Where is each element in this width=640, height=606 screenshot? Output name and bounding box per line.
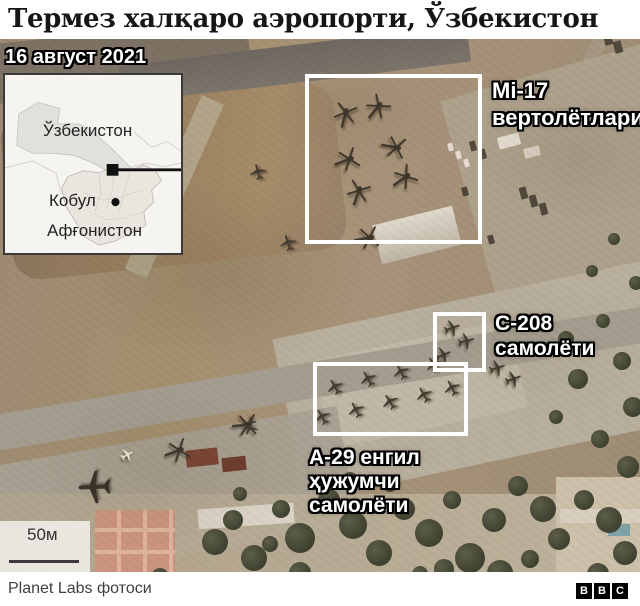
building-roof [221,456,246,472]
tree [415,519,443,547]
tree [366,540,392,566]
scale-label: 50м [27,525,58,545]
bbc-logo-block-1: B [576,583,592,599]
termez-marker [107,164,119,176]
tree [233,487,247,501]
tree [521,550,539,568]
tree [613,541,637,565]
tree [272,500,290,518]
inset-label-uzbekistan: Ўзбекистон [43,121,132,141]
satellite-image: 16 август 2021 Mi-17 вертолётлари C-208 … [0,39,640,572]
tree [548,528,570,550]
tree [508,476,528,496]
tree [482,508,506,532]
tree [262,536,278,552]
tree [586,265,598,277]
tree [574,490,594,510]
tree [608,233,620,245]
courtyard [95,510,175,572]
transport-airplane-silhouette [76,468,113,505]
kabul-dot [111,198,119,206]
a29-annotation-box [313,362,468,436]
footer-bar: Planet Labs фотоси B B C [0,572,640,606]
inset-label-kabul: Кобул [49,191,96,211]
c208-label-line1: C-208 [495,311,594,336]
page-title: Термез халқаро аэропорти, Ўзбекистон [0,0,640,34]
inset-map: Ўзбекистон Кобул Афғонистон [3,73,183,255]
mi17-label: Mi-17 вертолётлари [492,77,640,131]
mi17-label-line1: Mi-17 [492,77,640,104]
tree [591,430,609,448]
mi17-label-line2: вертолётлари [492,104,640,131]
c208-label-line2: самолёти [495,336,594,361]
c208-label: C-208 самолёти [495,311,594,361]
tree [443,491,461,509]
a29-label: A-29 енгил ҳужумчи самолёти [309,446,420,518]
tree [530,496,556,522]
tree [568,369,588,389]
date-label: 16 август 2021 [5,46,146,69]
tree [623,397,640,417]
tree [549,410,563,424]
mi17-annotation-box [305,74,482,244]
title-bar: Термез халқаро аэропорти, Ўзбекистон [0,0,640,39]
inset-label-afghanistan: Афғонистон [47,221,142,241]
bbc-logo-block-3: C [612,583,628,599]
tree [613,352,631,370]
tree [455,543,485,572]
tree [434,559,454,572]
tree [223,510,243,530]
a29-label-line1: A-29 енгил [309,446,420,470]
image-credit: Planet Labs фотоси [8,580,152,598]
vehicle [613,40,624,54]
bbc-logo-block-2: B [594,583,610,599]
news-graphic: Термез халқаро аэропорти, Ўзбекистон 16 … [0,0,640,606]
a29-label-line3: самолёти [309,494,420,518]
scale-bar: 50м [0,521,90,572]
tree [202,529,228,555]
scale-line [9,560,79,563]
tree [617,456,639,478]
tree [285,523,315,553]
tree [596,314,610,328]
tree [596,507,622,533]
tree [629,276,640,290]
bbc-logo: B B C [576,583,628,599]
a29-label-line2: ҳужумчи [309,470,420,494]
